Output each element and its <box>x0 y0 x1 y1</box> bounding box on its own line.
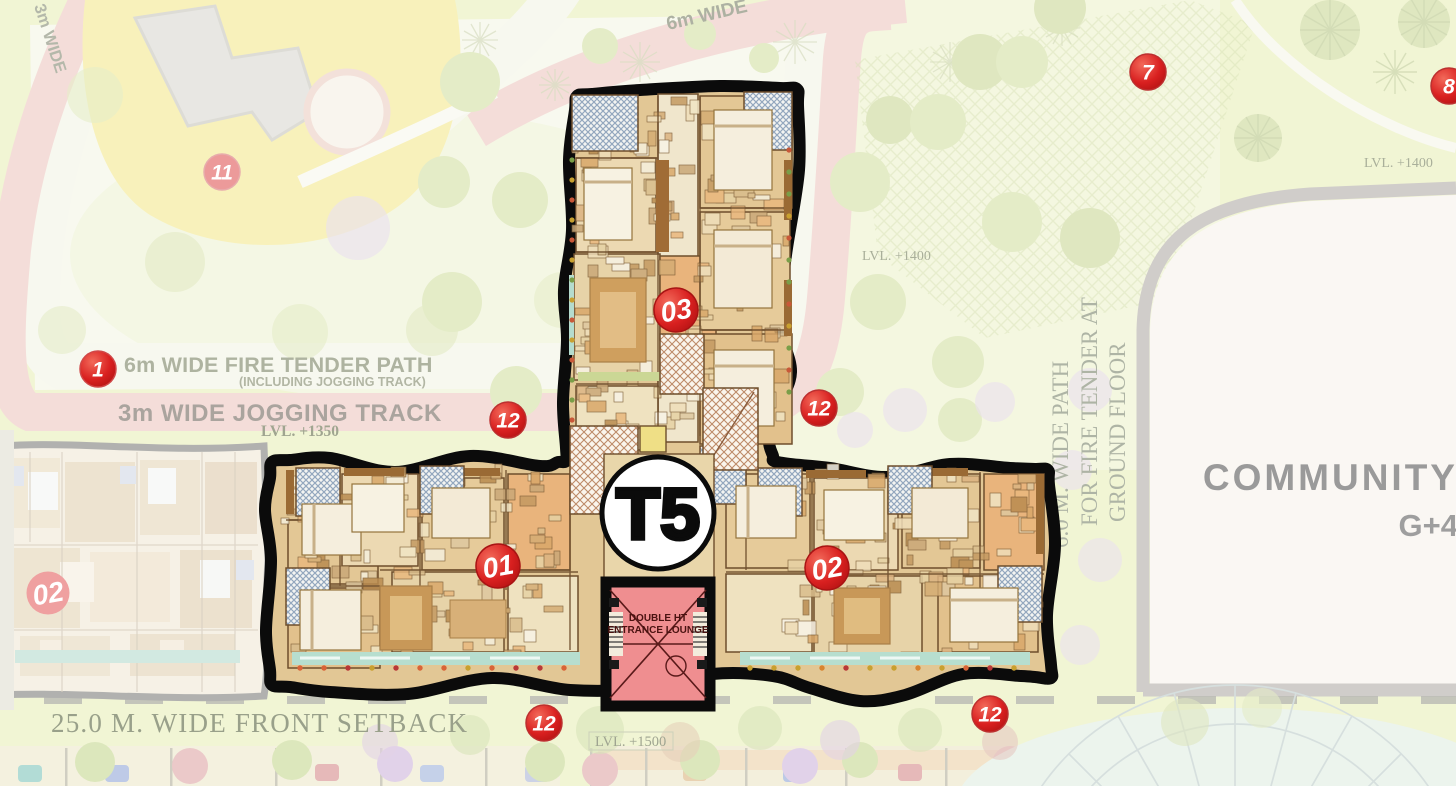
svg-text:12: 12 <box>496 410 520 433</box>
svg-text:DOUBLE HT: DOUBLE HT <box>629 613 687 624</box>
svg-text:12: 12 <box>532 713 556 736</box>
svg-text:ENTRANCE LOUNGE: ENTRANCE LOUNGE <box>607 625 708 636</box>
svg-text:COMMUNITY: COMMUNITY <box>1203 457 1456 498</box>
svg-text:GROUND FLOOR: GROUND FLOOR <box>1105 342 1130 522</box>
svg-text:FOR FIRE TENDER AT: FOR FIRE TENDER AT <box>1077 297 1102 526</box>
svg-text:1: 1 <box>92 359 104 382</box>
svg-text:(INCLUDING JOGGING TRACK): (INCLUDING JOGGING TRACK) <box>239 375 426 389</box>
svg-text:12: 12 <box>978 704 1002 727</box>
svg-text:25.0 M. WIDE FRONT SETBACK: 25.0 M. WIDE FRONT SETBACK <box>51 708 468 738</box>
svg-text:11: 11 <box>211 162 233 185</box>
svg-text:LVL. +1400: LVL. +1400 <box>1364 156 1433 171</box>
svg-text:LVL. +1400: LVL. +1400 <box>862 249 931 264</box>
svg-text:6m WIDE FIRE TENDER PATH: 6m WIDE FIRE TENDER PATH <box>124 353 433 377</box>
svg-text:03: 03 <box>658 292 694 328</box>
svg-text:12: 12 <box>807 398 831 421</box>
svg-text:LVL. +1500: LVL. +1500 <box>595 734 666 750</box>
svg-text:02: 02 <box>809 550 845 586</box>
svg-text:LVL. +1350: LVL. +1350 <box>261 423 339 440</box>
svg-text:01: 01 <box>480 549 516 585</box>
svg-text:02: 02 <box>30 575 66 611</box>
svg-text:T5: T5 <box>616 475 700 555</box>
svg-text:G+4: G+4 <box>1399 508 1456 543</box>
svg-text:8: 8 <box>1443 76 1455 99</box>
svg-text:7: 7 <box>1142 62 1155 85</box>
